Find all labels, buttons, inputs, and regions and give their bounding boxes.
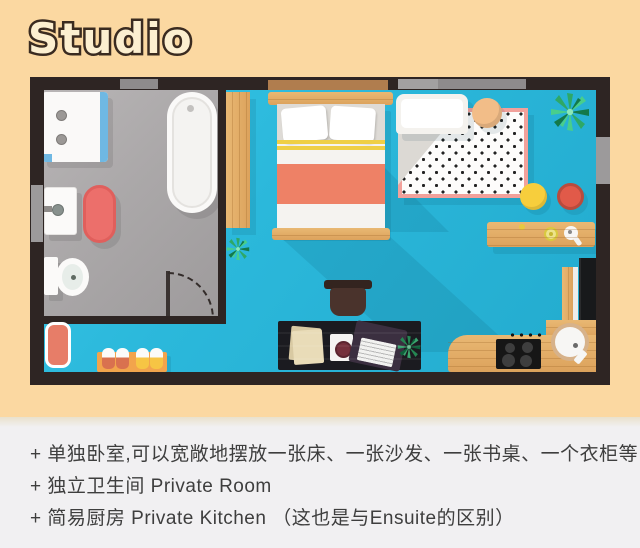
entrance-mat bbox=[45, 322, 71, 368]
page-title: Studio bbox=[28, 14, 194, 63]
bed-pillow bbox=[281, 105, 329, 143]
burner-icon bbox=[502, 354, 515, 367]
laptop bbox=[348, 320, 408, 372]
toilet-drain-icon bbox=[71, 275, 76, 280]
bed bbox=[277, 104, 385, 234]
window-right bbox=[596, 137, 610, 184]
notecard bbox=[330, 334, 353, 361]
fridge bbox=[579, 258, 596, 322]
paper-sheet bbox=[289, 326, 322, 362]
bed-stripe-yellow bbox=[277, 146, 385, 150]
floor-plan bbox=[30, 77, 610, 385]
potted-plant-large-icon bbox=[548, 90, 592, 134]
burner-icon bbox=[522, 342, 533, 353]
desk-plant-icon bbox=[396, 334, 422, 360]
kitchen-sink bbox=[551, 323, 589, 361]
red-stool bbox=[557, 183, 584, 210]
bathtub-basin bbox=[172, 97, 212, 208]
bed-blanket-stripe bbox=[277, 164, 385, 204]
ottoman bbox=[472, 98, 502, 128]
shower-glass-corner bbox=[44, 154, 52, 162]
note-private-room: + 独立卫生间 Private Room bbox=[30, 471, 616, 503]
note-bedroom: + 单独卧室,可以宽敞地摆放一张床、一张沙发、一张书桌、一个衣柜等 bbox=[30, 439, 616, 471]
window-top-right bbox=[398, 79, 526, 89]
floor-plant-small-icon bbox=[225, 236, 251, 262]
utensil-icon bbox=[573, 235, 583, 246]
paper-sheet bbox=[292, 329, 324, 365]
desk-chair bbox=[330, 288, 366, 316]
desk bbox=[278, 321, 421, 370]
shoe-icon bbox=[150, 348, 163, 369]
plate-icon bbox=[564, 226, 578, 240]
lemon-icon bbox=[519, 224, 525, 230]
bed-stripe-yellow bbox=[277, 140, 385, 144]
laptop-keyboard bbox=[357, 337, 397, 367]
burner-icon bbox=[520, 355, 532, 367]
window-left bbox=[31, 185, 43, 242]
shoe-icon bbox=[102, 348, 115, 369]
shower-knob-icon bbox=[56, 134, 67, 145]
shoe-icon bbox=[116, 348, 129, 369]
bed-pillow bbox=[329, 105, 376, 142]
sink-faucet-icon bbox=[44, 206, 52, 212]
window-top-left bbox=[120, 79, 158, 89]
bathroom-bottom-wall bbox=[44, 316, 226, 324]
shower bbox=[44, 92, 108, 162]
kitchen-white-panel bbox=[573, 267, 578, 322]
room-interior bbox=[44, 90, 596, 372]
toilet bbox=[56, 258, 89, 296]
yellow-stool bbox=[520, 183, 547, 210]
bed-footboard bbox=[272, 228, 390, 240]
stove bbox=[496, 339, 541, 369]
wardrobe bbox=[226, 92, 250, 228]
note-private-kitchen: + 简易厨房 Private Kitchen （这也是与Ensuite的区别） bbox=[30, 503, 616, 535]
bathtub bbox=[167, 92, 217, 213]
side-table bbox=[487, 222, 595, 247]
bath-mat bbox=[83, 185, 116, 243]
feature-notes: + 单独卧室,可以宽敞地摆放一张床、一张沙发、一张书桌、一个衣柜等 + 独立卫生… bbox=[0, 417, 640, 548]
bathroom-divider-wall bbox=[218, 90, 226, 324]
headboard-wall-shelf bbox=[268, 80, 388, 90]
seal-icon bbox=[335, 341, 352, 358]
sink-knob-icon bbox=[52, 204, 64, 216]
shower-knob-icon bbox=[56, 110, 67, 121]
shower-glass bbox=[100, 92, 108, 162]
sofa-cushion bbox=[401, 99, 463, 128]
plate-icon bbox=[544, 227, 558, 241]
sink-drain-icon bbox=[573, 343, 578, 348]
sofa bbox=[396, 94, 468, 134]
bathtub-drain-icon bbox=[187, 105, 194, 112]
shoe-icon bbox=[136, 348, 149, 369]
burner-icon bbox=[505, 343, 515, 353]
